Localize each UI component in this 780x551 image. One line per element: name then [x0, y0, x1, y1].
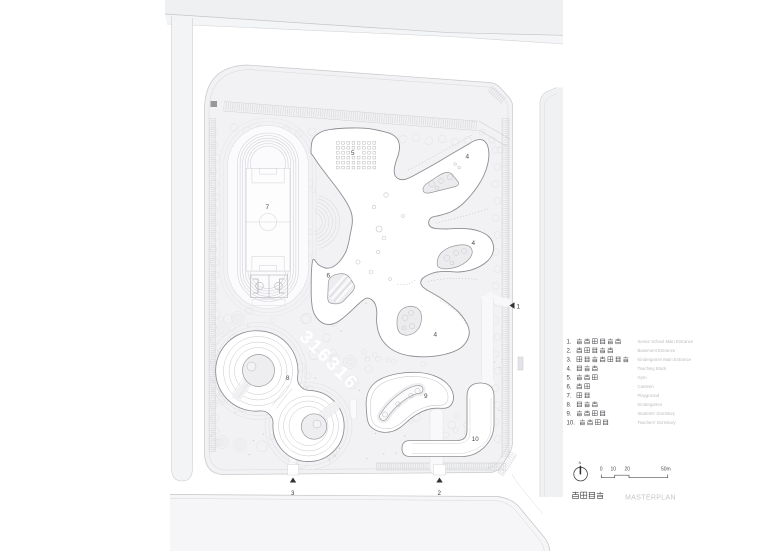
svg-text:Senior School Main Entrance: Senior School Main Entrance [638, 339, 694, 344]
svg-text:5: 5 [351, 150, 355, 157]
svg-text:Canteen: Canteen [638, 384, 655, 389]
svg-text:10.: 10. [567, 420, 576, 427]
svg-text:2.: 2. [567, 348, 572, 355]
svg-text:7: 7 [266, 204, 270, 211]
svg-text:Students’ Dormitory: Students’ Dormitory [638, 411, 676, 416]
svg-text:9.: 9. [567, 411, 572, 418]
svg-text:8.: 8. [567, 402, 572, 409]
svg-text:1.: 1. [567, 339, 572, 346]
svg-text:Kindergarten Main Entrance: Kindergarten Main Entrance [638, 357, 692, 362]
svg-text:Teachers’ Dormitory: Teachers’ Dormitory [638, 420, 677, 425]
svg-text:8: 8 [286, 375, 290, 382]
svg-text:Kindergarten: Kindergarten [638, 402, 663, 407]
svg-text:3: 3 [291, 490, 295, 497]
svg-text:Gym: Gym [638, 375, 647, 380]
svg-text:6.: 6. [567, 384, 572, 391]
svg-text:4.: 4. [567, 366, 572, 373]
svg-text:5.: 5. [567, 375, 572, 382]
svg-text:7.: 7. [567, 393, 572, 400]
svg-text:20: 20 [625, 467, 631, 473]
svg-text:4: 4 [466, 154, 470, 161]
svg-text:10: 10 [472, 436, 479, 443]
svg-text:3.: 3. [567, 357, 572, 364]
svg-text:0: 0 [600, 467, 603, 473]
svg-text:MASTERPLAN: MASTERPLAN [625, 494, 676, 501]
svg-text:4: 4 [472, 240, 476, 247]
svg-text:6: 6 [327, 273, 331, 280]
svg-text:50m: 50m [661, 467, 671, 473]
svg-text:9: 9 [424, 393, 428, 400]
svg-text:10: 10 [611, 467, 617, 473]
svg-text:Basement Entrance: Basement Entrance [638, 348, 676, 353]
svg-text:1: 1 [517, 304, 521, 311]
svg-text:Teaching Block: Teaching Block [638, 366, 668, 371]
svg-text:4: 4 [434, 332, 438, 339]
svg-text:Playground: Playground [638, 393, 660, 398]
svg-text:2: 2 [438, 490, 442, 497]
